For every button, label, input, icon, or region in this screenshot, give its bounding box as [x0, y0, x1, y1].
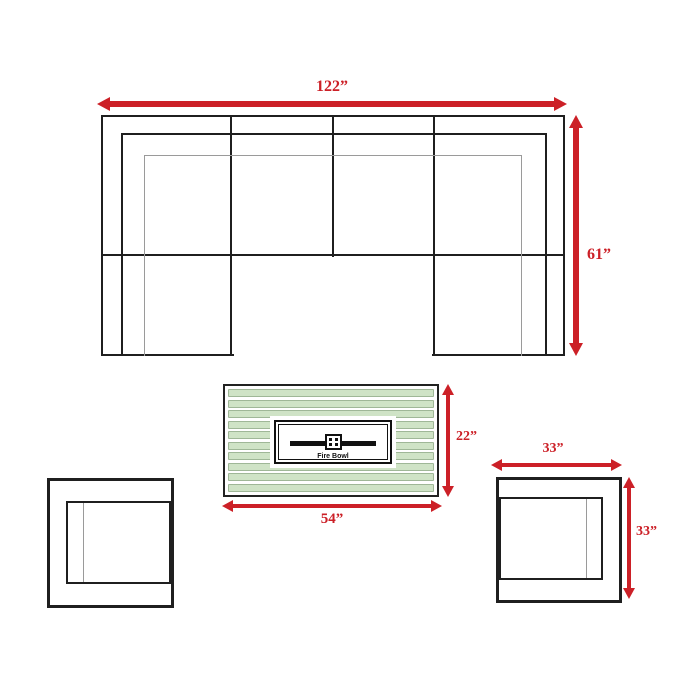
club-chair-left-seat — [66, 501, 171, 584]
arrow-bar — [573, 123, 579, 348]
sectional-depth-arrow — [569, 115, 583, 356]
arrowhead-right-icon — [554, 97, 567, 111]
arrowhead-right-icon — [611, 459, 622, 471]
table-slat — [228, 473, 434, 481]
sectional-opening-gap — [234, 352, 432, 359]
club-chair-height-arrow — [622, 477, 635, 599]
sectional-cushion-line-left — [144, 155, 145, 356]
club-chair-height-label: 33” — [636, 524, 657, 540]
club-chair-right-seat — [499, 497, 603, 580]
burner-dot — [329, 443, 332, 446]
arrowhead-down-icon — [569, 343, 583, 356]
sectional-depth-label: 61” — [587, 246, 611, 264]
table-slat — [228, 389, 434, 397]
arrow-bar — [499, 463, 614, 467]
arrow-bar — [230, 504, 434, 508]
fire-table-width-label: 54” — [282, 511, 382, 528]
arrow-bar — [105, 101, 559, 107]
club-chair-width-label: 33” — [503, 441, 603, 457]
burner-dot — [335, 443, 338, 446]
arrowhead-right-icon — [431, 500, 442, 512]
fire-table-diagram: Fire Bowl — [223, 384, 439, 497]
burner-dot — [329, 438, 332, 441]
table-slat — [228, 484, 434, 492]
sectional-divider-right — [433, 115, 435, 356]
arrowhead-down-icon — [442, 486, 454, 497]
arrow-bar — [446, 392, 450, 489]
fire-table-height-label: 22” — [456, 429, 477, 445]
fire-table-height-arrow — [442, 384, 454, 497]
arrowhead-down-icon — [623, 588, 635, 599]
club-chair-right-cushion-line — [586, 499, 587, 578]
sectional-right-arm-line — [545, 133, 547, 356]
fire-bowl-panel: Fire Bowl — [274, 420, 392, 464]
table-slat — [228, 410, 434, 418]
burner-dot — [335, 438, 338, 441]
sectional-width-label: 122” — [282, 78, 382, 96]
furniture-dimension-diagram: 122” 61” Fire Bowl — [0, 0, 700, 700]
fire-burner-icon — [325, 434, 342, 450]
sectional-cushion-line-horizontal — [144, 155, 522, 156]
sectional-divider-left — [230, 115, 232, 356]
sectional-width-arrow — [97, 97, 567, 111]
fire-bowl-label: Fire Bowl — [276, 453, 390, 460]
club-chair-left-cushion-line — [83, 503, 84, 582]
sectional-cushion-line-right — [521, 155, 522, 356]
sectional-backrest-line — [121, 133, 547, 135]
sectional-divider-middle — [332, 115, 334, 257]
arrow-bar — [627, 485, 631, 591]
table-slat — [228, 400, 434, 408]
club-chair-width-arrow — [491, 459, 622, 471]
sectional-left-arm-line — [121, 133, 123, 356]
